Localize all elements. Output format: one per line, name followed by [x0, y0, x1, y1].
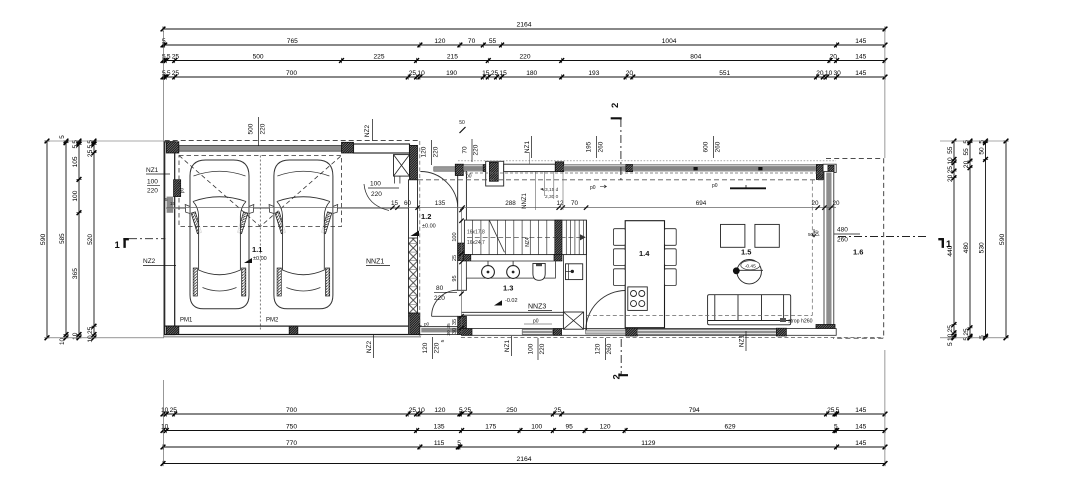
svg-text:10: 10 [72, 332, 79, 340]
svg-text:220: 220 [519, 54, 530, 61]
svg-text:10: 10 [825, 70, 833, 77]
svg-text:480: 480 [837, 227, 848, 234]
svg-text:20: 20 [947, 174, 954, 182]
svg-text:120: 120 [434, 407, 445, 414]
svg-text:-0.02: -0.02 [505, 298, 518, 304]
svg-text:105: 105 [72, 156, 79, 167]
svg-text:1004: 1004 [662, 38, 677, 45]
svg-text:5: 5 [72, 140, 79, 144]
svg-text:strop h260: strop h260 [788, 319, 813, 325]
svg-text:145: 145 [855, 38, 866, 45]
svg-text:590: 590 [40, 234, 47, 246]
svg-text:590: 590 [999, 234, 1006, 246]
svg-text:1129: 1129 [641, 440, 656, 447]
svg-text:220: 220 [260, 123, 267, 134]
svg-text:195: 195 [586, 141, 593, 152]
svg-text:500: 500 [253, 54, 264, 61]
svg-text:±0.00: ±0.00 [253, 256, 267, 262]
svg-text:120: 120 [421, 146, 428, 157]
svg-text:10: 10 [59, 338, 66, 346]
svg-text:-0.45: -0.45 [745, 263, 756, 269]
svg-text:1.4: 1.4 [639, 249, 650, 258]
svg-text:10: 10 [417, 70, 425, 77]
svg-text:100: 100 [370, 181, 381, 188]
svg-text:p0: p0 [712, 183, 718, 189]
svg-text:145: 145 [855, 424, 866, 431]
svg-text:NNZ1: NNZ1 [522, 193, 528, 209]
svg-text:260: 260 [598, 141, 605, 152]
svg-text:220: 220 [539, 343, 546, 354]
svg-text:551: 551 [719, 70, 730, 77]
svg-text:60: 60 [404, 200, 412, 207]
svg-text:190: 190 [446, 70, 457, 77]
svg-text:5: 5 [87, 145, 94, 149]
svg-text:100: 100 [452, 232, 458, 241]
svg-text:95: 95 [452, 275, 458, 281]
svg-text:NZ1: NZ1 [739, 334, 746, 347]
svg-text:10: 10 [161, 424, 169, 431]
svg-text:120: 120 [595, 343, 602, 354]
svg-text:260: 260 [837, 237, 848, 244]
svg-text:5: 5 [459, 407, 463, 414]
svg-text:115: 115 [434, 440, 445, 447]
svg-text:5: 5 [162, 54, 166, 61]
svg-text:220: 220 [473, 144, 480, 155]
svg-text:25: 25 [409, 70, 417, 77]
svg-text:120: 120 [600, 424, 611, 431]
svg-text:NZ1: NZ1 [524, 140, 531, 153]
svg-text:260: 260 [715, 141, 722, 152]
svg-text:600: 600 [703, 141, 710, 152]
svg-text:20: 20 [963, 160, 970, 168]
svg-text:NZ1: NZ1 [504, 339, 511, 352]
svg-text:5: 5 [963, 140, 970, 144]
svg-text:180: 180 [526, 70, 537, 77]
svg-text:25: 25 [947, 325, 954, 333]
svg-text:5: 5 [947, 342, 954, 346]
svg-text:NZ2: NZ2 [143, 258, 156, 265]
svg-text:220: 220 [434, 295, 445, 302]
svg-text:10: 10 [161, 407, 169, 414]
svg-text:15: 15 [499, 70, 507, 77]
svg-text:15: 15 [391, 200, 399, 207]
svg-text:765: 765 [287, 38, 298, 45]
svg-text:220: 220 [147, 188, 158, 195]
svg-text:1.2: 1.2 [421, 212, 431, 221]
svg-text:135: 135 [435, 200, 446, 207]
svg-text:1.3: 1.3 [503, 284, 513, 293]
svg-text:2164: 2164 [516, 22, 531, 29]
svg-text:770: 770 [286, 440, 297, 447]
svg-text:2,30 0: 2,30 0 [545, 194, 559, 200]
svg-text:3,15 d: 3,15 d [545, 187, 559, 193]
svg-text:5: 5 [167, 70, 171, 77]
svg-text:120: 120 [422, 342, 429, 353]
svg-text:145: 145 [855, 54, 866, 61]
svg-text:55: 55 [947, 146, 954, 154]
svg-text:20: 20 [811, 200, 819, 207]
svg-text:30: 30 [834, 70, 842, 77]
svg-text:25: 25 [827, 407, 835, 414]
svg-text:193: 193 [588, 70, 599, 77]
svg-text:30: 30 [452, 328, 458, 334]
svg-text:p0: p0 [590, 185, 596, 191]
svg-text:10: 10 [947, 157, 954, 165]
svg-text:25: 25 [170, 407, 178, 414]
svg-text:520: 520 [87, 234, 94, 245]
svg-text:35: 35 [446, 323, 452, 329]
svg-text:PM1: PM1 [180, 318, 193, 324]
svg-text:220: 220 [434, 342, 441, 353]
svg-text:120: 120 [434, 38, 445, 45]
svg-text:365: 365 [72, 268, 79, 279]
svg-text:5: 5 [457, 440, 461, 447]
svg-text:15: 15 [170, 201, 176, 206]
svg-text:80: 80 [436, 285, 444, 292]
svg-text:1.1: 1.1 [252, 245, 262, 254]
svg-text:700: 700 [286, 70, 297, 77]
svg-text:NZ1: NZ1 [146, 167, 159, 174]
svg-text:215: 215 [447, 54, 458, 61]
svg-text:250: 250 [506, 407, 517, 414]
svg-text:794: 794 [689, 407, 700, 414]
svg-text:55: 55 [489, 38, 497, 45]
svg-text:25: 25 [409, 407, 417, 414]
svg-text:NNZ1: NNZ1 [366, 259, 384, 266]
svg-text:220: 220 [371, 191, 382, 198]
svg-text:5: 5 [834, 424, 838, 431]
svg-text:25: 25 [172, 54, 180, 61]
svg-text:35: 35 [452, 319, 458, 325]
svg-text:145: 145 [855, 407, 866, 414]
svg-text:55: 55 [963, 148, 970, 156]
svg-text:25: 25 [554, 407, 562, 414]
svg-text:530: 530 [979, 242, 986, 253]
svg-text:260: 260 [606, 343, 613, 354]
svg-text:480: 480 [963, 242, 970, 253]
svg-text:NZ4: NZ4 [525, 237, 531, 247]
svg-text:750: 750 [286, 424, 297, 431]
svg-text:145: 145 [855, 70, 866, 77]
svg-text:175: 175 [485, 424, 496, 431]
svg-text:100: 100 [531, 424, 542, 431]
svg-text:5: 5 [162, 70, 166, 77]
svg-text:PM2: PM2 [266, 318, 279, 324]
svg-text:1: 1 [115, 240, 121, 251]
svg-text:5: 5 [167, 54, 171, 61]
svg-text:25: 25 [464, 407, 472, 414]
svg-text:5: 5 [72, 145, 79, 149]
svg-text:16x17,8: 16x17,8 [467, 230, 485, 236]
svg-text:10: 10 [87, 335, 94, 343]
svg-text:100: 100 [147, 179, 158, 186]
svg-text:25: 25 [947, 166, 954, 174]
svg-text:16x24,7: 16x24,7 [467, 240, 485, 246]
svg-text:100: 100 [528, 343, 535, 354]
svg-text:5: 5 [836, 407, 840, 414]
svg-text:1.5: 1.5 [741, 248, 751, 257]
svg-text:5: 5 [162, 38, 166, 45]
svg-text:5: 5 [440, 339, 446, 342]
svg-text:p0: p0 [466, 174, 472, 180]
svg-text:20: 20 [626, 70, 634, 77]
svg-text:288: 288 [505, 200, 516, 207]
svg-text:20: 20 [830, 54, 838, 61]
svg-text:±0.00: ±0.00 [422, 224, 436, 230]
svg-text:70: 70 [462, 146, 469, 154]
svg-text:p0: p0 [180, 187, 185, 193]
svg-text:100: 100 [72, 190, 79, 201]
svg-text:25: 25 [963, 328, 970, 336]
svg-text:10: 10 [947, 333, 954, 341]
svg-text:2: 2 [610, 103, 621, 108]
svg-text:25: 25 [87, 149, 94, 157]
svg-text:629: 629 [724, 424, 735, 431]
svg-text:440: 440 [947, 245, 954, 256]
svg-text:25: 25 [452, 255, 458, 261]
svg-text:70: 70 [468, 38, 476, 45]
svg-text:220: 220 [433, 146, 440, 157]
svg-text:135: 135 [434, 424, 445, 431]
svg-text:500: 500 [248, 123, 255, 134]
svg-text:5: 5 [963, 337, 970, 341]
svg-text:5: 5 [979, 140, 986, 144]
svg-text:p0: p0 [533, 319, 539, 325]
svg-text:804: 804 [690, 54, 701, 61]
svg-text:20: 20 [832, 200, 840, 207]
svg-text:5: 5 [979, 335, 986, 339]
svg-text:5: 5 [59, 135, 66, 139]
svg-text:5: 5 [87, 140, 94, 144]
svg-text:NZ2: NZ2 [366, 340, 373, 353]
svg-text:15: 15 [482, 70, 490, 77]
svg-text:1.6: 1.6 [853, 248, 863, 257]
svg-text:585: 585 [59, 233, 66, 244]
svg-text:225: 225 [373, 54, 384, 61]
svg-text:2164: 2164 [516, 456, 531, 463]
svg-text:30: 30 [446, 330, 452, 336]
svg-text:NZ2: NZ2 [364, 124, 371, 137]
svg-text:25: 25 [87, 326, 94, 334]
svg-text:700: 700 [286, 407, 297, 414]
svg-text:25: 25 [491, 70, 499, 77]
svg-text:NNZ3: NNZ3 [528, 304, 546, 311]
svg-text:p0: p0 [424, 322, 430, 327]
svg-text:10: 10 [417, 407, 425, 414]
svg-text:694: 694 [696, 200, 707, 207]
svg-text:70: 70 [571, 200, 579, 207]
svg-text:95: 95 [566, 424, 574, 431]
svg-text:25: 25 [172, 70, 180, 77]
svg-text:20: 20 [816, 70, 824, 77]
svg-text:145: 145 [855, 440, 866, 447]
svg-text:50: 50 [979, 147, 986, 155]
svg-text:50: 50 [459, 120, 465, 126]
